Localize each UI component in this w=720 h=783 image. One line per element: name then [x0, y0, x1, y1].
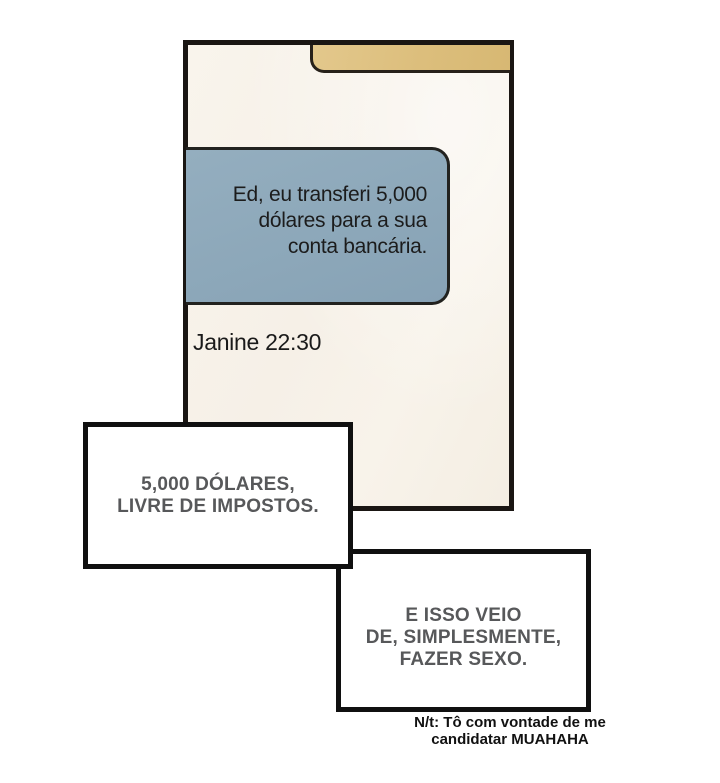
- translator-note-line: candidatar MUAHAHA: [390, 731, 630, 748]
- caption-text-2: E ISSO VEIO DE, SIMPLESMENTE, FAZER SEXO…: [366, 605, 562, 671]
- caption-line: E ISSO VEIO: [366, 605, 562, 627]
- chat-message-line: dólares para a sua: [233, 208, 427, 234]
- chat-message-line: Ed, eu transferi 5,000: [233, 182, 427, 208]
- chat-message-text: Ed, eu transferi 5,000 dólares para a su…: [233, 182, 427, 260]
- notification-bar: [310, 45, 510, 73]
- caption-line: DE, SIMPLESMENTE,: [366, 627, 562, 649]
- caption-text-1: 5,000 DÓLARES, LIVRE DE IMPOSTOS.: [117, 474, 319, 518]
- sender-timestamp: Janine 22:30: [193, 329, 321, 356]
- caption-line: 5,000 DÓLARES,: [117, 474, 319, 496]
- translator-note-line: N/t: Tô com vontade de me: [390, 714, 630, 731]
- caption-box-2: E ISSO VEIO DE, SIMPLESMENTE, FAZER SEXO…: [336, 549, 591, 712]
- comic-panel: Ed, eu transferi 5,000 dólares para a su…: [0, 0, 720, 783]
- caption-line: FAZER SEXO.: [366, 649, 562, 671]
- chat-message-line: conta bancária.: [233, 234, 427, 260]
- translator-note: N/t: Tô com vontade de me candidatar MUA…: [390, 714, 630, 748]
- caption-box-1: 5,000 DÓLARES, LIVRE DE IMPOSTOS.: [83, 422, 353, 569]
- chat-message-bubble: Ed, eu transferi 5,000 dólares para a su…: [186, 147, 450, 305]
- caption-line: LIVRE DE IMPOSTOS.: [117, 496, 319, 518]
